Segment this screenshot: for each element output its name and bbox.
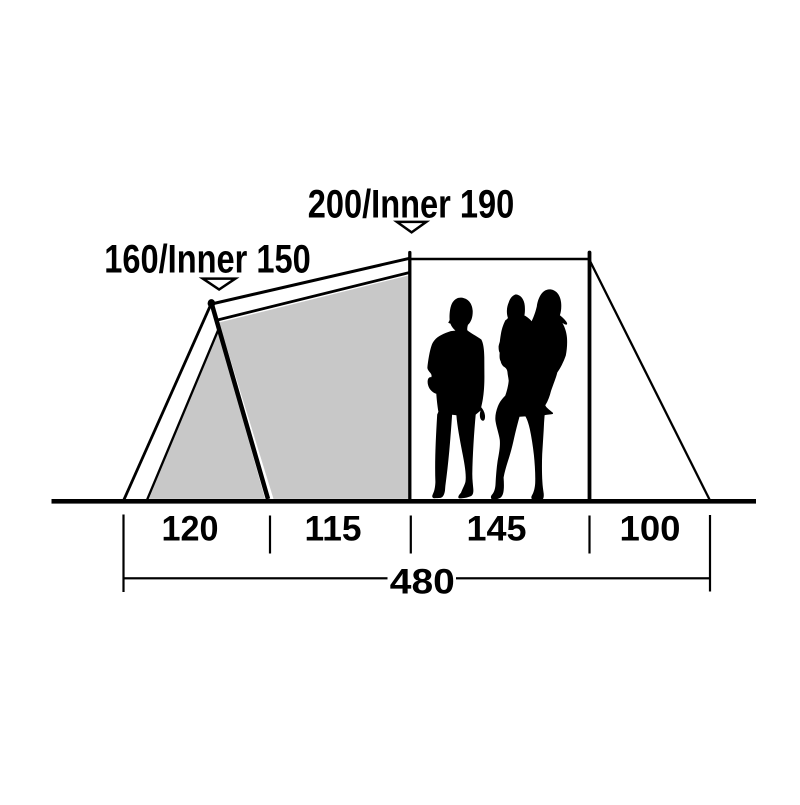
svg-text:200/Inner 190: 200/Inner 190 <box>308 183 515 227</box>
svg-text:100: 100 <box>620 509 681 548</box>
svg-text:480: 480 <box>390 562 455 602</box>
svg-text:115: 115 <box>305 509 362 548</box>
svg-text:145: 145 <box>467 509 527 548</box>
svg-text:160/Inner 150: 160/Inner 150 <box>104 238 311 282</box>
svg-text:120: 120 <box>162 509 219 548</box>
